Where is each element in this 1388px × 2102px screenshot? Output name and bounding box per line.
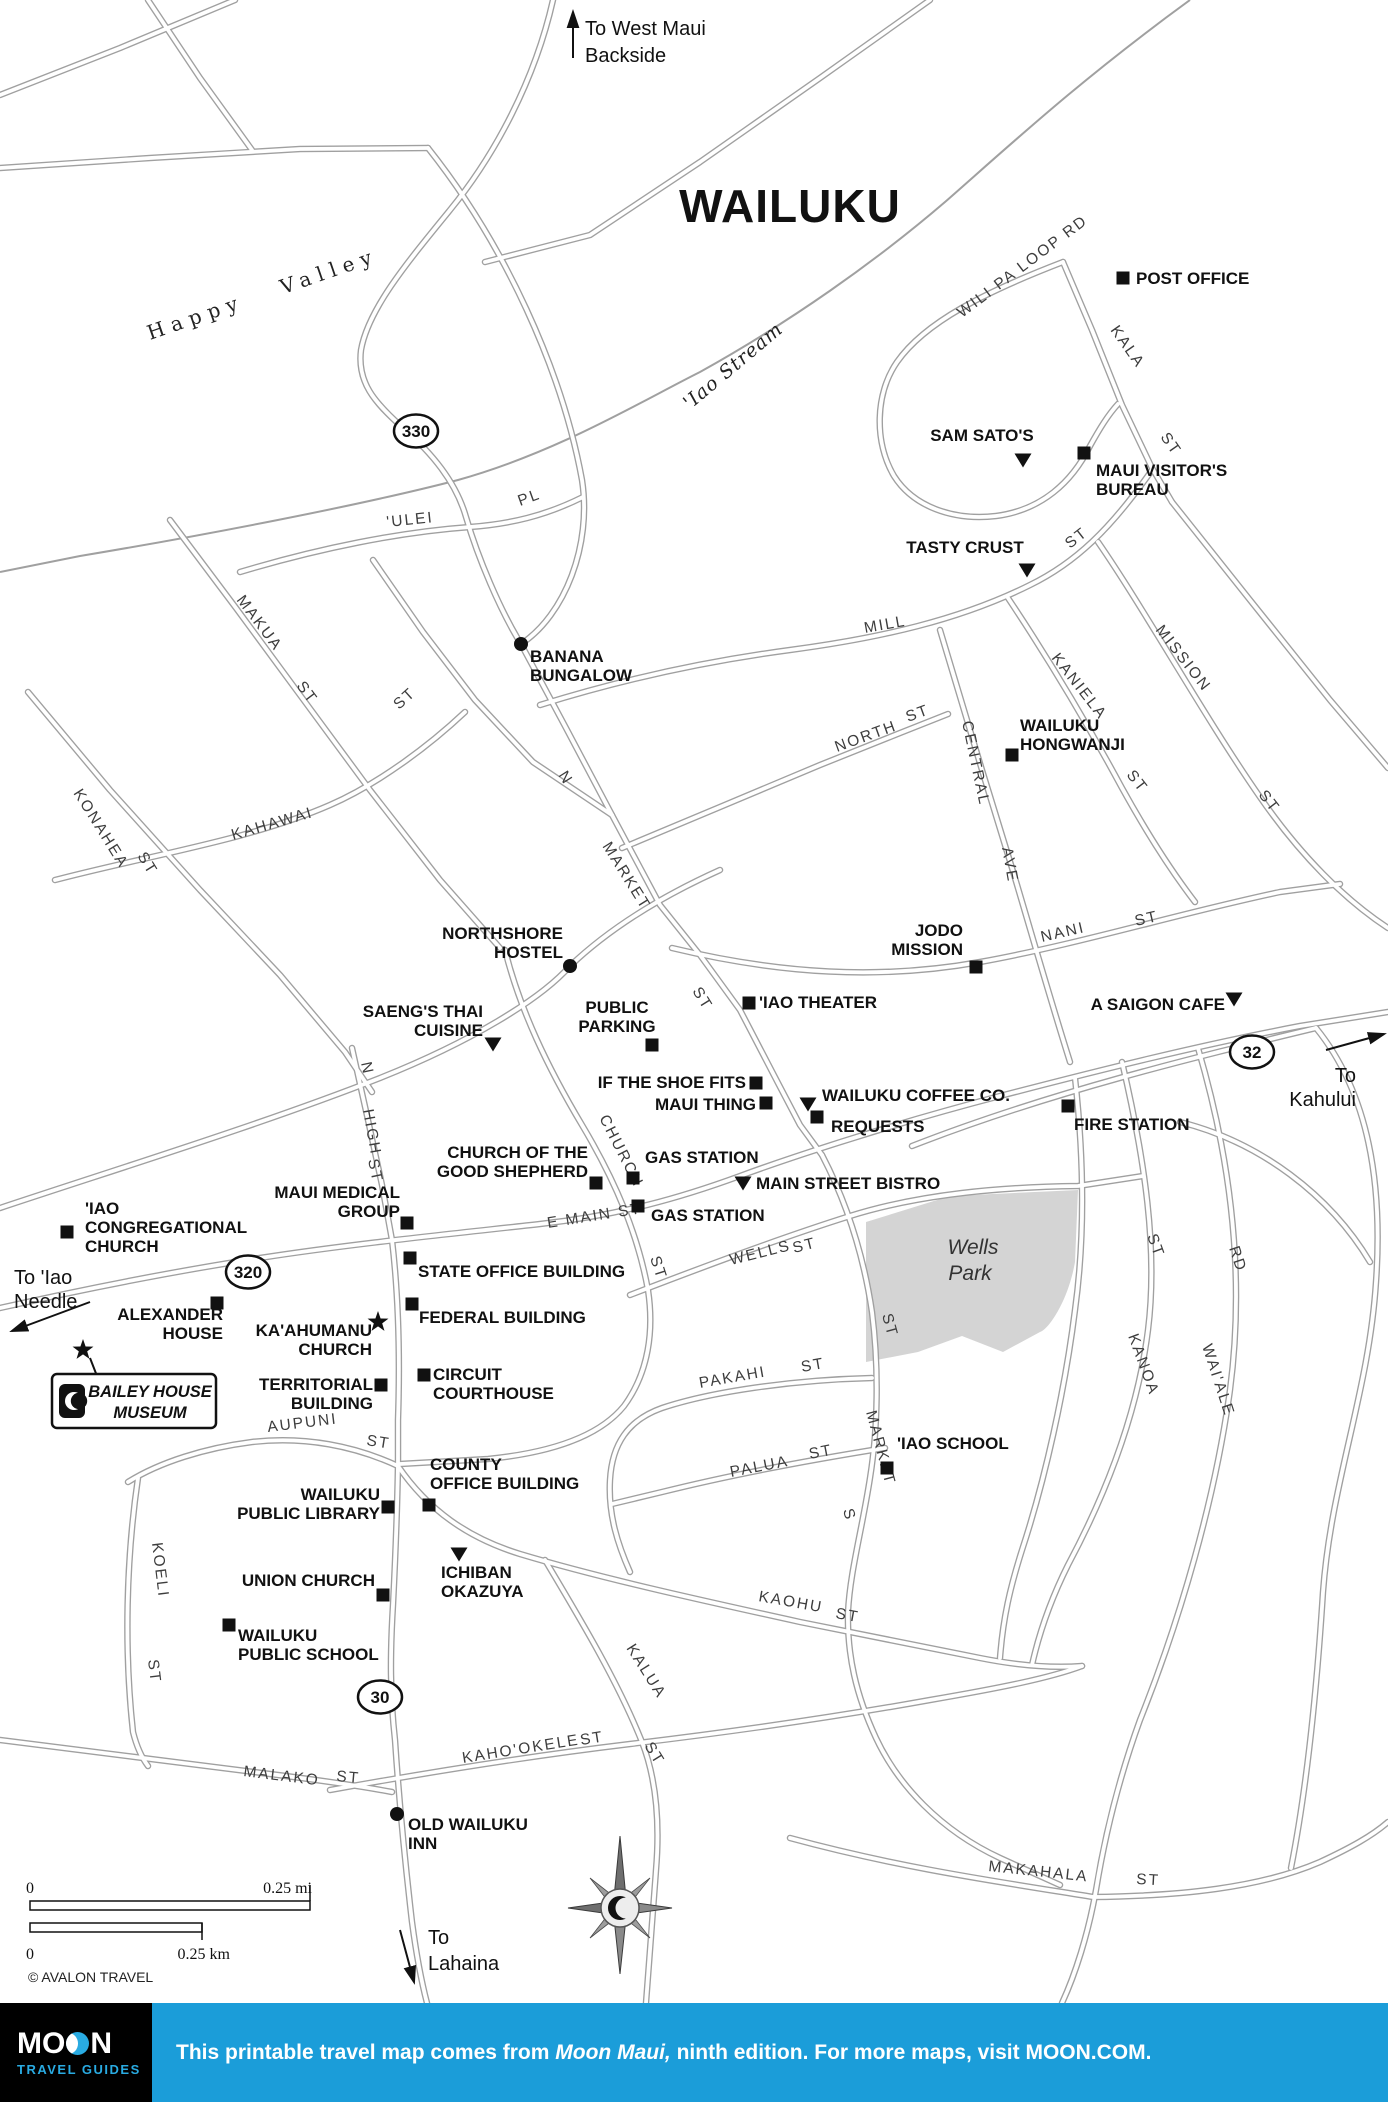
- poi-label-main-street-bistro: MAIN STREET BISTRO: [756, 1174, 940, 1193]
- shield-number: 30: [371, 1688, 390, 1707]
- poi-banana-bungalow: BANANABUNGALOW: [514, 637, 633, 685]
- square-marker-icon: [375, 1379, 388, 1392]
- street-label-st-27: ST: [646, 1254, 670, 1282]
- street-label-st-33: ST: [791, 1235, 818, 1257]
- poi-label-requests: REQUESTS: [831, 1117, 925, 1136]
- road-casing-w-main-rd: [0, 870, 720, 1208]
- road-casing-kanoa-st: [1032, 1062, 1151, 1665]
- square-marker-icon: [1078, 447, 1091, 460]
- direction-west-maui-backside: To West MauiBackside: [573, 12, 706, 67]
- square-marker-icon: [743, 997, 756, 1010]
- road-casing-kahului-beach-rd: [1291, 1028, 1378, 1868]
- scale-mi-label: 0.25 mi: [263, 1880, 312, 1897]
- wells-park-label-2: Park: [948, 1262, 993, 1285]
- poi-maui-medical-group: MAUI MEDICALGROUP: [274, 1183, 413, 1230]
- street-label-kala-1: KALA: [1107, 323, 1148, 372]
- triangle-marker-icon: [1015, 454, 1032, 468]
- wailuku-map-page: WILI PA LOOP RDKALASTMILLSTNORTHSTCENTRA…: [0, 0, 1388, 2102]
- triangle-marker-icon: [800, 1098, 817, 1112]
- poi-main-street-bistro: MAIN STREET BISTRO: [735, 1174, 941, 1193]
- poi-label-alexander-house: ALEXANDERHOUSE: [117, 1305, 223, 1343]
- street-label-rd-44: RD: [1225, 1244, 1249, 1274]
- street-label-st-18: ST: [293, 678, 321, 707]
- street-label-high-29: HIGH: [359, 1108, 384, 1157]
- square-marker-icon: [627, 1172, 640, 1185]
- poi-wailuku-public-library: WAILUKUPUBLIC LIBRARY: [237, 1485, 394, 1523]
- road-mission-st: [1098, 542, 1388, 928]
- poi-church-of-the-good-shepherd: CHURCH OF THEGOOD SHEPHERD: [437, 1143, 603, 1190]
- poi-wailuku-public-school: WAILUKUPUBLIC SCHOOL: [223, 1619, 379, 1665]
- square-marker-icon: [406, 1298, 419, 1311]
- street-label-st-48: ST: [144, 1658, 164, 1684]
- square-marker-icon: [377, 1589, 390, 1602]
- shield-number: 320: [234, 1263, 262, 1282]
- banner-text-book-title: Moon Maui,: [555, 2041, 670, 2064]
- poi-maui-visitors-bureau: MAUI VISITOR'SBUREAU: [1078, 447, 1228, 500]
- road-casing-park-east-rd: [1000, 1078, 1082, 1658]
- poi-label-fire-station: FIRE STATION: [1074, 1115, 1190, 1134]
- banner-bar: This printable travel map comes from Moo…: [152, 2003, 1388, 2102]
- square-marker-icon: [382, 1501, 395, 1514]
- poi-label-iao-school: 'IAO SCHOOL: [897, 1434, 1009, 1453]
- street-label-ave-8: AVE: [998, 846, 1021, 884]
- poi-label-old-wailuku-inn: OLD WAILUKUINN: [408, 1815, 528, 1853]
- street-label-kahawai-20: KAHAWAI: [229, 804, 315, 844]
- poi-wailuku-coffee-co: WAILUKU COFFEE CO.: [800, 1086, 1010, 1112]
- route-shield-320: 320: [226, 1256, 270, 1289]
- road-casing-kalua-st: [545, 1560, 657, 2003]
- street-label-aupuni-45: AUPUNI: [266, 1410, 338, 1435]
- direction-label-lahaina: ToLahaina: [428, 1927, 500, 1975]
- street-label-st-2: ST: [1157, 430, 1185, 459]
- road-kahului-beach-rd: [1291, 1028, 1378, 1868]
- street-label-s-36: S: [839, 1507, 859, 1523]
- poi-tasty-crust: TASTY CRUST: [906, 538, 1035, 578]
- poi-label-church-of-the-good-shepherd: CHURCH OF THEGOOD SHEPHERD: [437, 1143, 588, 1181]
- poi-territorial-building: TERRITORIALBUILDING: [259, 1375, 387, 1413]
- poi-iao-congregational-church: 'IAOCONGREGATIONALCHURCH: [61, 1199, 248, 1256]
- poi-state-office-building: STATE OFFICE BUILDING: [404, 1252, 626, 1282]
- street-label-st-30: ST: [364, 1157, 386, 1184]
- square-marker-icon: [223, 1619, 236, 1632]
- poi-label-union-church: UNION CHURCH: [242, 1571, 375, 1590]
- road-casing-route-330: [360, 0, 553, 644]
- poi-if-the-shoe-fits: IF THE SHOE FITS: [598, 1073, 763, 1092]
- poi-old-wailuku-inn: OLD WAILUKUINN: [390, 1807, 528, 1853]
- poi-label-kaahumanu-church: KA'AHUMANUCHURCH: [256, 1321, 372, 1359]
- route-shield-330: 330: [394, 415, 438, 448]
- square-marker-icon: [970, 961, 983, 974]
- poi-alexander-house: ALEXANDERHOUSE: [117, 1297, 223, 1344]
- moon-banner: MON TRAVEL GUIDES This printable travel …: [0, 2003, 1388, 2102]
- poi-requests: REQUESTS: [811, 1111, 925, 1137]
- poi-label-territorial-building: TERRITORIALBUILDING: [259, 1375, 373, 1413]
- poi-label-maui-medical-group: MAUI MEDICALGROUP: [274, 1183, 400, 1221]
- road-route-330: [360, 0, 553, 644]
- square-marker-icon: [632, 1200, 645, 1213]
- star-marker-icon: [73, 1339, 94, 1359]
- dot-marker-icon: [563, 959, 577, 973]
- square-marker-icon: [646, 1039, 659, 1052]
- poi-label-gas-station-main: GAS STATION: [645, 1148, 759, 1167]
- triangle-marker-icon: [735, 1177, 752, 1191]
- street-label-makua-17: MAKUA: [233, 592, 286, 654]
- arrow-icon: [1326, 1034, 1384, 1050]
- square-marker-icon: [423, 1499, 436, 1512]
- moon-icon-crescent-cut: [71, 1393, 87, 1409]
- direction-label-kahului: ToKahului: [1289, 1065, 1356, 1111]
- happy-valley-label: Happy Valley: [144, 243, 382, 345]
- poi-label-saengs-thai-cuisine: SAENG'S THAICUISINE: [363, 1002, 483, 1040]
- road-upper-left-2: [148, 0, 252, 150]
- square-marker-icon: [881, 1462, 894, 1475]
- poi-label-circuit-courthouse: CIRCUITCOURTHOUSE: [433, 1365, 554, 1403]
- road-konahea-st: [28, 692, 372, 1092]
- banner-text-pre: This printable travel map comes from: [176, 2041, 555, 2064]
- poi-label-county-office-building: COUNTYOFFICE BUILDING: [430, 1455, 579, 1493]
- street-label-central-7: CENTRAL: [958, 719, 993, 807]
- poi-label-ichiban-okazuya: ICHIBANOKAZUYA: [441, 1563, 524, 1601]
- street-label-st-46: ST: [365, 1432, 391, 1453]
- road-casing-nani-st: [672, 884, 1340, 972]
- road-kahookele-st: [330, 1666, 1082, 1790]
- triangle-marker-icon: [451, 1548, 468, 1562]
- poi-label-state-office-building: STATE OFFICE BUILDING: [418, 1262, 625, 1281]
- square-marker-icon: [811, 1111, 824, 1124]
- road-malako-st: [0, 1740, 392, 1792]
- poi-federal-building: FEDERAL BUILDING: [406, 1298, 586, 1328]
- poi-label-wailuku-coffee-co: WAILUKU COFFEE CO.: [822, 1086, 1010, 1105]
- street-label-st-58: ST: [1136, 1871, 1161, 1889]
- poi-label-iao-congregational-church: 'IAOCONGREGATIONALCHURCH: [85, 1199, 247, 1256]
- poi-iao-school: 'IAO SCHOOL: [881, 1434, 1009, 1475]
- street-label-st-19: ST: [390, 684, 419, 713]
- poi-label-federal-building: FEDERAL BUILDING: [419, 1308, 586, 1327]
- scale-bar: 0 0.25 mi 0 0.25 km: [26, 1880, 313, 1963]
- road-w-main-rd: [0, 870, 720, 1208]
- poi-label-post-office: POST OFFICE: [1136, 269, 1249, 288]
- moon-logo-word: MON: [17, 2029, 152, 2059]
- street-label-kalua-51: KALUA: [623, 1641, 670, 1702]
- road-upper-diag: [428, 148, 584, 644]
- banner-text: This printable travel map comes from Moo…: [176, 2041, 1151, 2065]
- square-marker-icon: [760, 1097, 773, 1110]
- street-label-kanoa-41: KANOA: [1124, 1332, 1162, 1398]
- road-kala-ext: [1172, 502, 1388, 768]
- direction-iao-needle: To 'IaoNeedle: [12, 1267, 90, 1331]
- poi-public-parking: PUBLICPARKING: [578, 998, 658, 1052]
- poi-label-wailuku-public-library: WAILUKUPUBLIC LIBRARY: [237, 1485, 381, 1523]
- direction-label-west-maui-backside: To West MauiBackside: [585, 18, 706, 67]
- square-marker-icon: [590, 1177, 603, 1190]
- street-label-st-50: ST: [834, 1605, 860, 1626]
- moon-logo: MON TRAVEL GUIDES: [0, 2003, 152, 2102]
- route-shield-30: 30: [358, 1681, 402, 1714]
- scale-km-label: 0.25 km: [178, 1946, 231, 1963]
- route-shield-32: 32: [1230, 1036, 1274, 1069]
- poi-label-iao-theater: 'IAO THEATER: [759, 993, 877, 1012]
- poi-union-church: UNION CHURCH: [242, 1571, 390, 1602]
- poi-label-northshore-hostel: NORTHSHOREHOSTEL: [442, 924, 563, 962]
- road-aupuni-st: [128, 1440, 398, 1482]
- square-marker-icon: [401, 1217, 414, 1230]
- square-marker-icon: [750, 1077, 763, 1090]
- road-north-st: [622, 714, 948, 848]
- street-label-st-38: ST: [800, 1355, 826, 1376]
- square-marker-icon: [404, 1252, 417, 1265]
- square-marker-icon: [1006, 749, 1019, 762]
- road-kalua-st: [545, 1560, 657, 2003]
- street-label-st-14: ST: [1133, 908, 1160, 930]
- moon-logo-subtitle: TRAVEL GUIDES: [17, 2062, 152, 2077]
- street-label-st-25: ST: [689, 984, 716, 1013]
- triangle-marker-icon: [485, 1038, 502, 1052]
- shield-number: 330: [402, 422, 430, 441]
- street-label-palua-39: PALUA: [729, 1453, 791, 1481]
- triangle-marker-icon: [1226, 993, 1243, 1007]
- street-label-koeli-47: KOELI: [148, 1541, 172, 1598]
- banner-text-post: ninth edition. For more maps, visit MOON…: [671, 2041, 1152, 2064]
- square-marker-icon: [418, 1369, 431, 1382]
- square-marker-icon: [1117, 272, 1130, 285]
- road-hwy-ramp-b: [1180, 1122, 1370, 1262]
- triangle-marker-icon: [1019, 564, 1036, 578]
- road-casing-hwy-ramp-b: [1180, 1122, 1370, 1262]
- scale-mi-zero: 0: [26, 1880, 34, 1897]
- logo-text-pre: MO: [17, 2029, 65, 2059]
- logo-text-post: N: [90, 2029, 112, 2059]
- poi-label-sam-satos: SAM SATO'S: [930, 426, 1034, 445]
- moon-crescent-icon: [66, 2032, 89, 2055]
- street-label-mission-11: MISSION: [1152, 622, 1214, 695]
- dot-marker-icon: [390, 1807, 404, 1821]
- scale-km-zero: 0: [26, 1946, 34, 1963]
- direction-kahului: ToKahului: [1289, 1034, 1384, 1111]
- street-label-pl-16: PL: [516, 486, 543, 510]
- street-label-st-42: ST: [1143, 1232, 1167, 1260]
- poi-label-wailuku-hongwanji: WAILUKUHONGWANJI: [1020, 716, 1125, 754]
- poi-post-office: POST OFFICE: [1117, 269, 1250, 288]
- poi-county-office-building: COUNTYOFFICE BUILDING: [423, 1455, 580, 1512]
- map-title: WAILUKU: [679, 180, 901, 232]
- street-label-wells-32: WELLS: [728, 1237, 793, 1269]
- wells-park-label-1: Wells: [948, 1236, 999, 1259]
- poi-iao-theater: 'IAO THEATER: [743, 993, 878, 1012]
- street-label-malako-55: MALAKO: [243, 1763, 321, 1789]
- poi-label-if-the-shoe-fits: IF THE SHOE FITS: [598, 1073, 746, 1092]
- square-marker-icon: [61, 1226, 74, 1239]
- copyright-credit: © AVALON TRAVEL: [28, 1969, 153, 1985]
- road-central-ave: [940, 630, 1070, 1062]
- poi-label-tasty-crust: TASTY CRUST: [906, 538, 1024, 557]
- bailey-house-callout: BAILEY HOUSEMUSEUM: [52, 1339, 216, 1428]
- poi-sam-satos: SAM SATO'S: [930, 426, 1034, 468]
- square-marker-icon: [1062, 1100, 1075, 1113]
- poi-saengs-thai-cuisine: SAENG'S THAICUISINE: [363, 1002, 502, 1052]
- poi-a-saigon-cafe: A SAIGON CAFE: [1091, 993, 1243, 1015]
- poi-kaahumanu-church: KA'AHUMANUCHURCH: [256, 1311, 389, 1359]
- poi-label-maui-visitors-bureau: MAUI VISITOR'SBUREAU: [1096, 461, 1227, 499]
- poi-circuit-courthouse: CIRCUITCOURTHOUSE: [418, 1365, 554, 1403]
- poi-label-jodo-mission: JODOMISSION: [891, 921, 963, 959]
- poi-label-banana-bungalow: BANANABUNGALOW: [530, 647, 633, 685]
- shield-number: 32: [1243, 1043, 1262, 1062]
- street-label--ulei-15: 'ULEI: [386, 509, 435, 531]
- iao-stream-label: 'Iao Stream: [679, 318, 787, 414]
- poi-label-maui-thing: MAUI THING: [655, 1095, 756, 1114]
- poi-maui-thing: MAUI THING: [655, 1095, 773, 1114]
- poi-label-a-saigon-cafe: A SAIGON CAFE: [1091, 995, 1225, 1014]
- dot-marker-icon: [514, 637, 528, 651]
- poi-label-wailuku-public-school: WAILUKUPUBLIC SCHOOL: [238, 1626, 379, 1664]
- street-label-wili-pa-loop-rd-0: WILI PA LOOP RD: [954, 212, 1091, 321]
- road-kanoa-st: [1032, 1062, 1151, 1665]
- street-label-n-28: N: [357, 1060, 376, 1076]
- poi-label-public-parking: PUBLICPARKING: [578, 998, 655, 1036]
- poi-ichiban-okazuya: ICHIBANOKAZUYA: [441, 1548, 524, 1602]
- poi-label-gas-station-market: GAS STATION: [651, 1206, 765, 1225]
- street-label-st-56: ST: [336, 1768, 361, 1787]
- map-canvas: WILI PA LOOP RDKALASTMILLSTNORTHSTCENTRA…: [0, 0, 1388, 2003]
- road-makua-st: [170, 520, 500, 948]
- road-casing-mission-st: [1098, 542, 1388, 928]
